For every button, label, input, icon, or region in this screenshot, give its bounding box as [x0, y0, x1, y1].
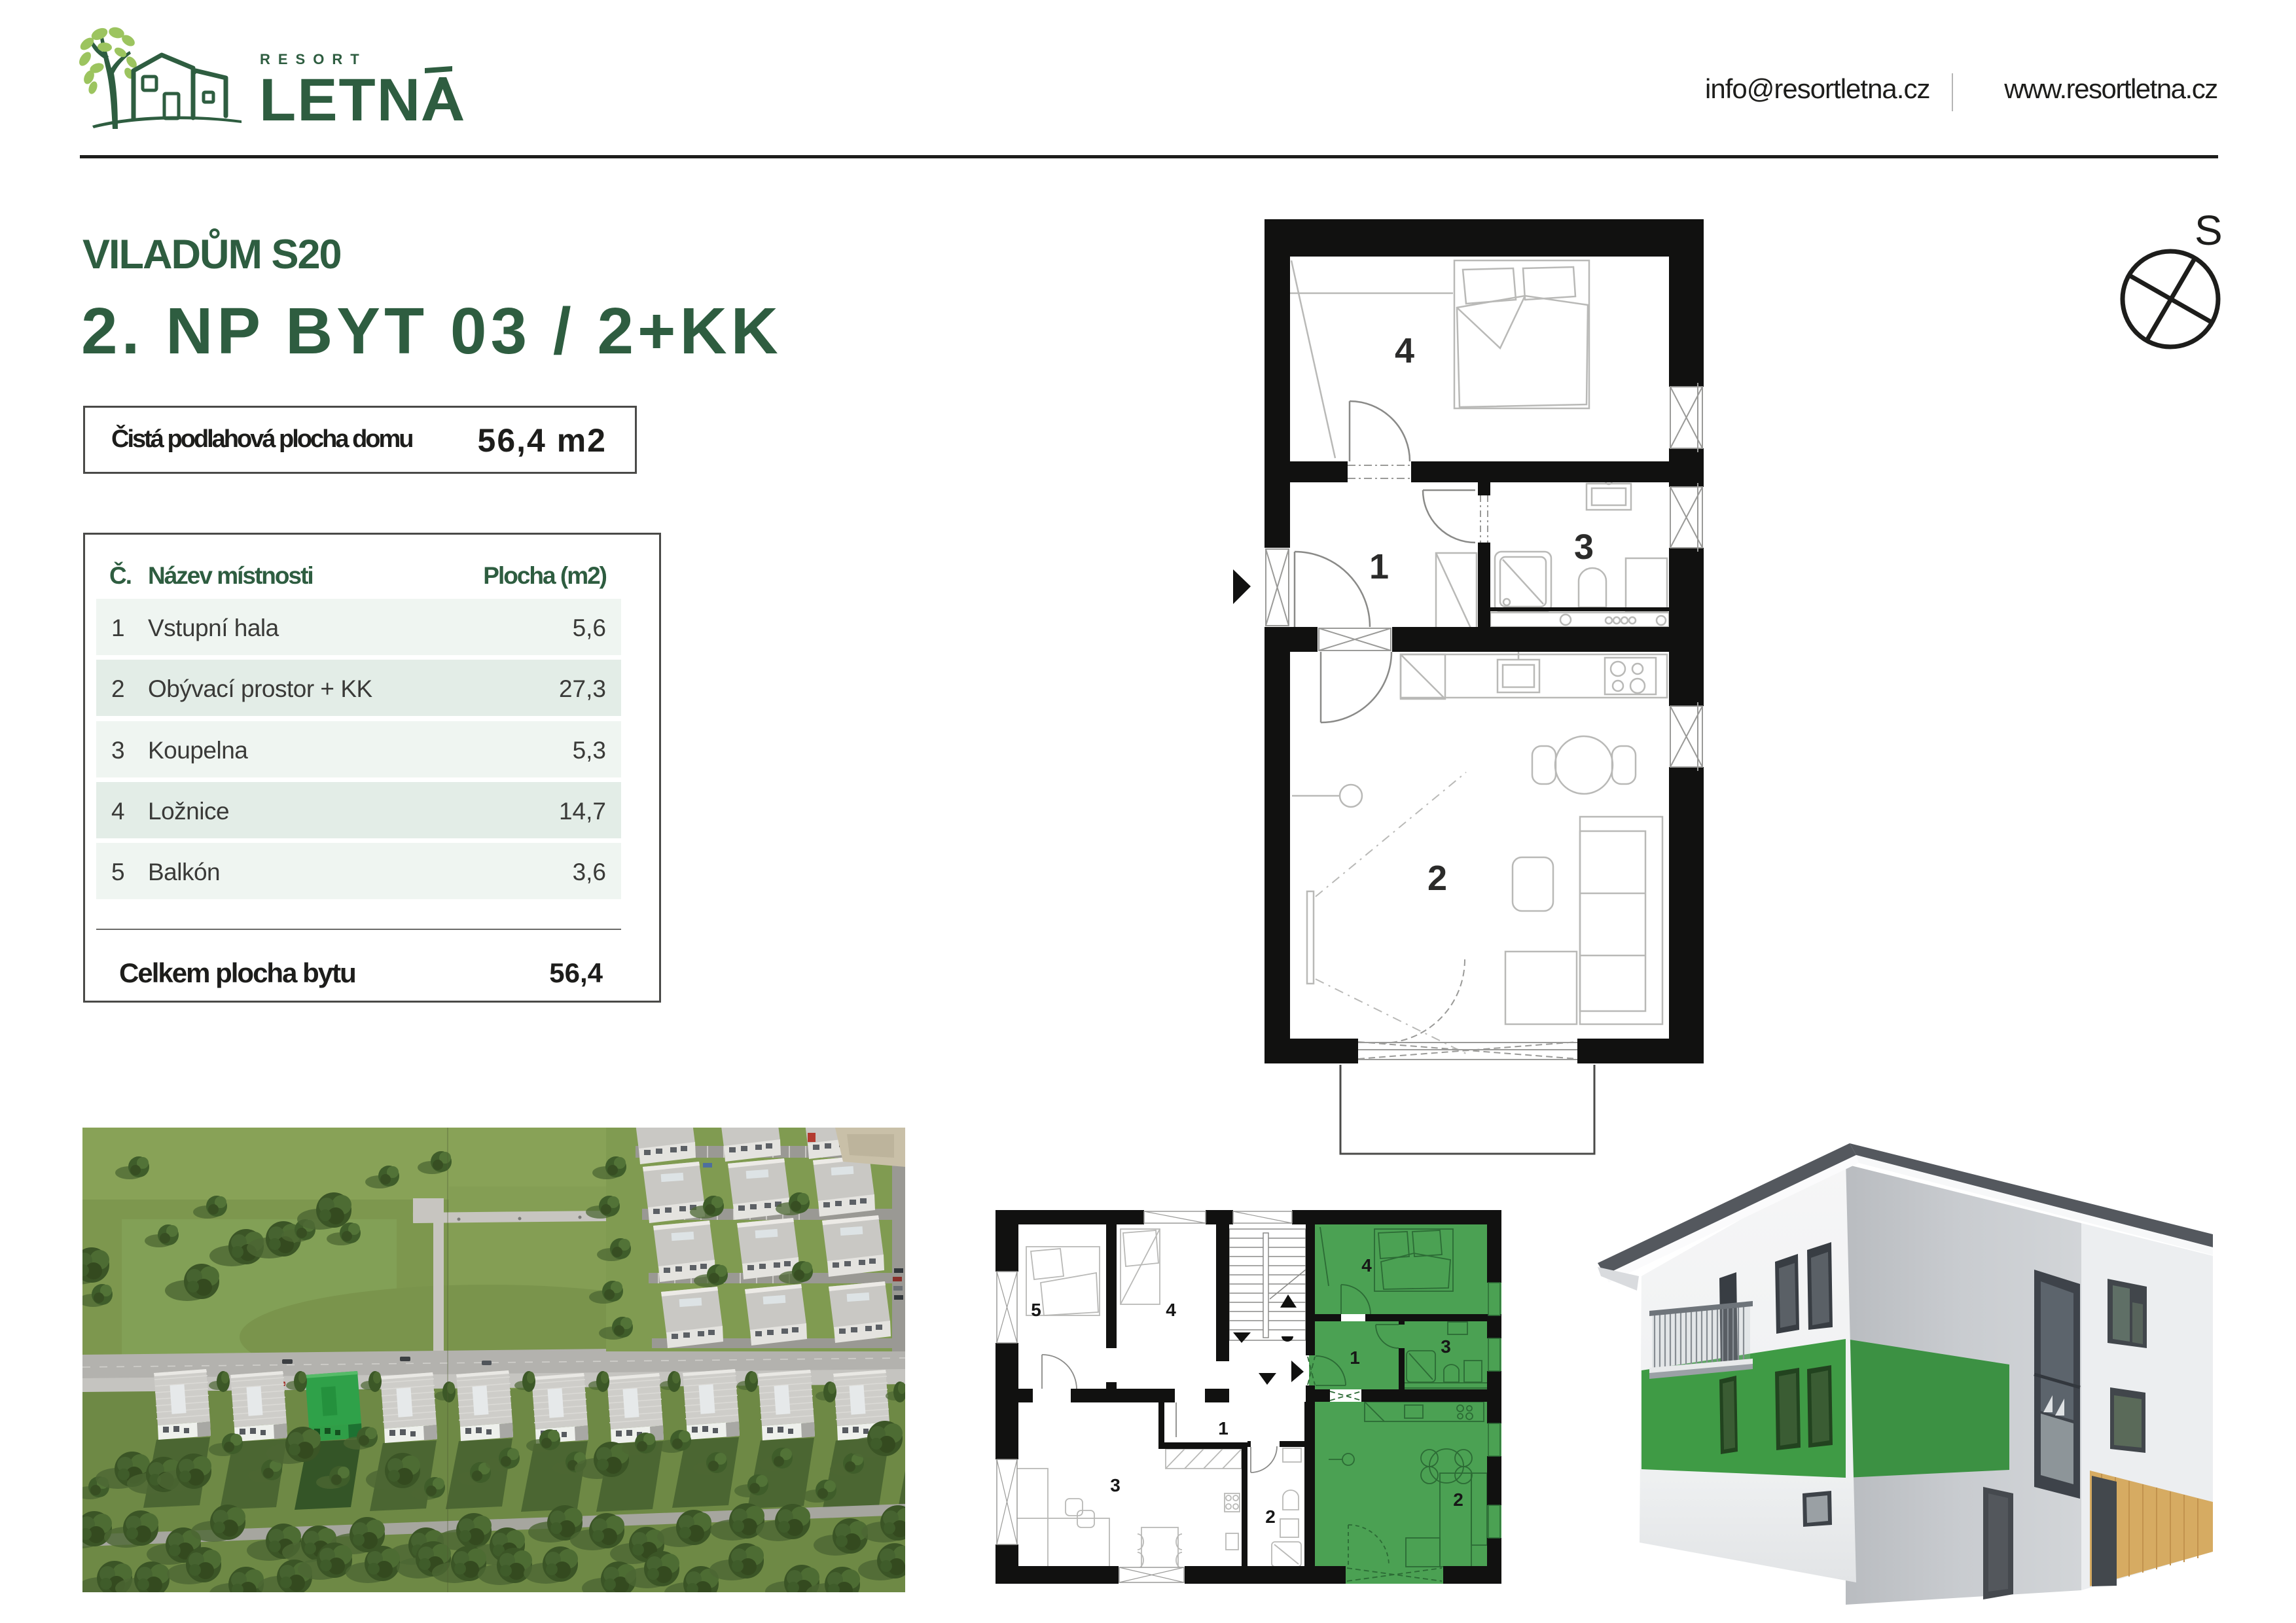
svg-text:5: 5 — [1031, 1300, 1041, 1320]
svg-text:RESORT: RESORT — [260, 51, 367, 67]
svg-text:3: 3 — [1110, 1475, 1121, 1495]
svg-text:2: 2 — [1453, 1489, 1463, 1510]
svg-text:3: 3 — [1441, 1336, 1451, 1357]
svg-text:1: 1 — [1369, 547, 1389, 586]
svg-text:4: 4 — [1166, 1300, 1176, 1320]
svg-text:1: 1 — [1350, 1347, 1360, 1368]
svg-text:2: 2 — [1427, 859, 1447, 898]
svg-text:S: S — [2195, 207, 2223, 254]
svg-text:4: 4 — [1395, 331, 1414, 370]
svg-text:LETN: LETN — [259, 67, 422, 134]
svg-text:4: 4 — [1361, 1255, 1372, 1275]
svg-text:2: 2 — [1265, 1507, 1276, 1527]
svg-text:1: 1 — [1218, 1418, 1229, 1438]
svg-text:3: 3 — [1574, 527, 1594, 567]
